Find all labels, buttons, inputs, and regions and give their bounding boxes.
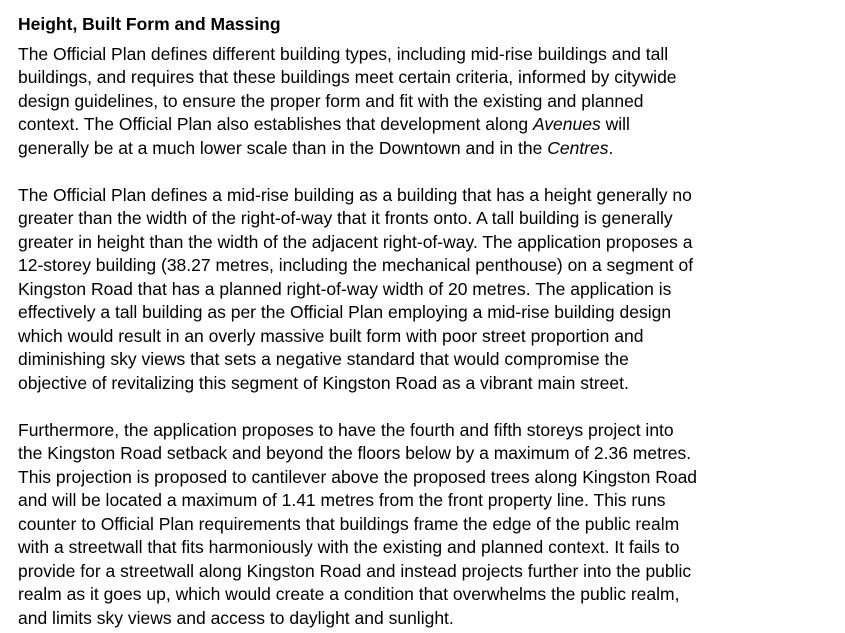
- text-line: and limits sky views and access to dayli…: [18, 607, 831, 631]
- text-line: The Official Plan defines different buil…: [18, 43, 831, 67]
- text-segment: generally be at a much lower scale than …: [18, 138, 547, 158]
- text-line: which would result in an overly massive …: [18, 325, 831, 349]
- text-segment: 12-storey building (38.27 metres, includ…: [18, 255, 693, 275]
- text-segment: .: [609, 138, 614, 158]
- text-segment: The Official Plan defines different buil…: [18, 44, 668, 64]
- text-line: buildings, and requires that these build…: [18, 66, 831, 90]
- text-line: realm as it goes up, which would create …: [18, 583, 831, 607]
- text-segment: realm as it goes up, which would create …: [18, 584, 679, 604]
- text-line: context. The Official Plan also establis…: [18, 113, 831, 137]
- text-line: with a streetwall that fits harmoniously…: [18, 536, 831, 560]
- text-line: This projection is proposed to cantileve…: [18, 466, 831, 490]
- text-segment: diminishing sky views that sets a negati…: [18, 349, 629, 369]
- text-line: counter to Official Plan requirements th…: [18, 513, 831, 537]
- text-line: The Official Plan defines a mid-rise bui…: [18, 184, 831, 208]
- text-segment: effectively a tall building as per the O…: [18, 302, 671, 322]
- text-segment: The Official Plan defines a mid-rise bui…: [18, 185, 692, 205]
- document-body: The Official Plan defines different buil…: [18, 43, 831, 631]
- text-line: diminishing sky views that sets a negati…: [18, 348, 831, 372]
- text-line: Kingston Road that has a planned right-o…: [18, 278, 831, 302]
- text-line: greater than the width of the right-of-w…: [18, 207, 831, 231]
- text-segment: counter to Official Plan requirements th…: [18, 514, 679, 534]
- text-line: provide for a streetwall along Kingston …: [18, 560, 831, 584]
- text-line: Furthermore, the application proposes to…: [18, 419, 831, 443]
- text-segment: context. The Official Plan also establis…: [18, 114, 533, 134]
- text-segment: Kingston Road that has a planned right-o…: [18, 279, 671, 299]
- text-segment: with a streetwall that fits harmoniously…: [18, 537, 679, 557]
- text-segment: buildings, and requires that these build…: [18, 67, 677, 87]
- text-segment: provide for a streetwall along Kingston …: [18, 561, 691, 581]
- text-segment: greater in height than the width of the …: [18, 232, 693, 252]
- text-segment: and will be located a maximum of 1.41 me…: [18, 490, 665, 510]
- text-line: the Kingston Road setback and beyond the…: [18, 442, 831, 466]
- text-segment: and limits sky views and access to dayli…: [18, 608, 454, 628]
- text-line: objective of revitalizing this segment o…: [18, 372, 831, 396]
- paragraph: Furthermore, the application proposes to…: [18, 419, 831, 631]
- document-page: Height, Built Form and Massing The Offic…: [0, 0, 845, 633]
- text-segment: the Kingston Road setback and beyond the…: [18, 443, 691, 463]
- text-segment: will: [601, 114, 630, 134]
- text-line: generally be at a much lower scale than …: [18, 137, 831, 161]
- section-heading: Height, Built Form and Massing: [18, 13, 831, 37]
- italic-term: Centres: [547, 138, 608, 158]
- text-segment: greater than the width of the right-of-w…: [18, 208, 673, 228]
- text-line: and will be located a maximum of 1.41 me…: [18, 489, 831, 513]
- text-line: effectively a tall building as per the O…: [18, 301, 831, 325]
- italic-term: Avenues: [533, 114, 601, 134]
- paragraph: The Official Plan defines different buil…: [18, 43, 831, 161]
- text-segment: design guidelines, to ensure the proper …: [18, 91, 644, 111]
- text-line: design guidelines, to ensure the proper …: [18, 90, 831, 114]
- text-line: 12-storey building (38.27 metres, includ…: [18, 254, 831, 278]
- text-segment: objective of revitalizing this segment o…: [18, 373, 629, 393]
- text-line: greater in height than the width of the …: [18, 231, 831, 255]
- text-segment: Furthermore, the application proposes to…: [18, 420, 674, 440]
- paragraph: The Official Plan defines a mid-rise bui…: [18, 184, 831, 396]
- text-segment: which would result in an overly massive …: [18, 326, 643, 346]
- text-segment: This projection is proposed to cantileve…: [18, 467, 697, 487]
